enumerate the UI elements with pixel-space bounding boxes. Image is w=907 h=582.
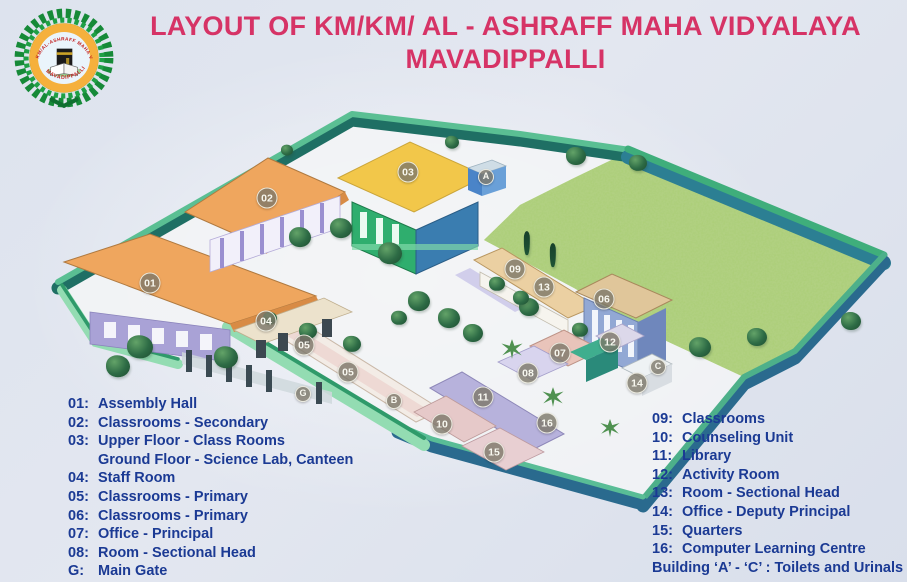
page-title: LAYOUT OF KM/KM/ AL - ASHRAFF MAHA VIDYA… bbox=[112, 10, 899, 76]
legend-item: 05:Classrooms - Primary bbox=[68, 488, 353, 507]
legend-item: 12:Activity Room bbox=[652, 466, 903, 485]
legend-item: 06:Classrooms - Primary bbox=[68, 507, 353, 526]
legend-item: G:Main Gate bbox=[68, 562, 353, 581]
legend-item: 01:Assembly Hall bbox=[68, 395, 353, 414]
legend-item: Ground Floor - Science Lab, Canteen bbox=[68, 451, 353, 470]
page: 0102030405050607080910111213141516ABCG bbox=[0, 0, 907, 582]
legend-item: 09:Classrooms bbox=[652, 410, 903, 429]
legend-item: 10:Counseling Unit bbox=[652, 429, 903, 448]
title-line-2: MAVADIPPALLI bbox=[112, 43, 899, 76]
legend-item: 08:Room - Sectional Head bbox=[68, 544, 353, 563]
legend-item: 16:Computer Learning Centre bbox=[652, 540, 903, 559]
school-logo: KM/AL-ASHRAFF MAHA VIDYALAYA MAVADIPPALL… bbox=[12, 5, 116, 111]
legend-item: Building ‘A’ - ‘C’ : Toilets and Urinals bbox=[652, 559, 903, 578]
legend-item: 02:Classrooms - Secondary bbox=[68, 414, 353, 433]
legend-item: 11:Library bbox=[652, 447, 903, 466]
legend-left: 01:Assembly Hall02:Classrooms - Secondar… bbox=[68, 395, 353, 581]
legend-item: 13:Room - Sectional Head bbox=[652, 484, 903, 503]
legend-item: 07:Office - Principal bbox=[68, 525, 353, 544]
legend-item: 04:Staff Room bbox=[68, 469, 353, 488]
legend-item: 03:Upper Floor - Class Rooms bbox=[68, 432, 353, 451]
legend-item: 15:Quarters bbox=[652, 522, 903, 541]
school-emblem: KM/AL-ASHRAFF MAHA VIDYALAYA MAVADIPPALL… bbox=[12, 5, 116, 111]
title-line-1: LAYOUT OF KM/KM/ AL - ASHRAFF MAHA VIDYA… bbox=[112, 10, 899, 43]
kaaba-icon bbox=[57, 49, 73, 66]
legend-right: 09:Classrooms10:Counseling Unit11:Librar… bbox=[652, 410, 903, 577]
legend-item: 14:Office - Deputy Principal bbox=[652, 503, 903, 522]
